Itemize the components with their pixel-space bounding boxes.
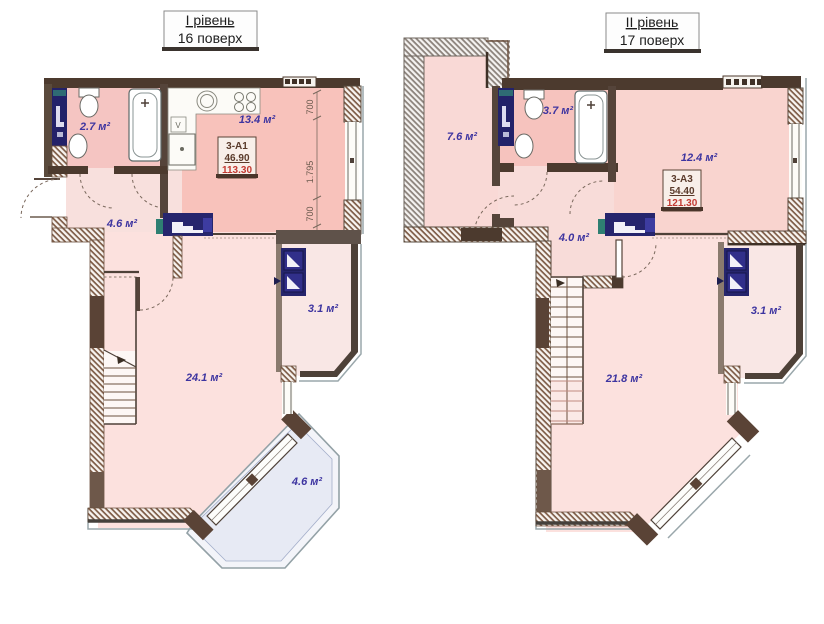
svg-text:4.6 м²: 4.6 м² [291, 476, 322, 488]
svg-text:46.90: 46.90 [224, 153, 249, 164]
svg-text:121.30: 121.30 [667, 198, 698, 209]
svg-text:54.40: 54.40 [669, 186, 694, 197]
svg-text:700: 700 [305, 99, 315, 114]
svg-text:V: V [175, 121, 181, 130]
svg-text:16 поверх: 16 поверх [178, 30, 243, 46]
svg-text:13.4 м²: 13.4 м² [239, 114, 276, 126]
svg-text:3.1 м²: 3.1 м² [308, 303, 338, 315]
svg-text:ІІ рівень: ІІ рівень [626, 14, 679, 30]
svg-text:24.1 м²: 24.1 м² [185, 372, 223, 384]
svg-text:4.6 м²: 4.6 м² [106, 218, 137, 230]
svg-text:17 поверх: 17 поверх [620, 32, 685, 48]
svg-text:7.6 м²: 7.6 м² [447, 131, 477, 143]
svg-text:4.0 м²: 4.0 м² [558, 232, 589, 244]
svg-text:2.7 м²: 2.7 м² [79, 121, 110, 133]
svg-text:21.8 м²: 21.8 м² [605, 373, 643, 385]
svg-text:1.795: 1.795 [305, 161, 315, 184]
svg-text:І рівень: І рівень [186, 12, 235, 28]
svg-text:3-А3: 3-А3 [671, 174, 693, 185]
svg-text:113.30: 113.30 [222, 165, 252, 176]
svg-text:3.7 м²: 3.7 м² [543, 105, 573, 117]
svg-text:12.4 м²: 12.4 м² [681, 152, 718, 164]
svg-text:3-А1: 3-А1 [226, 141, 248, 152]
svg-text:3.1 м²: 3.1 м² [751, 305, 781, 317]
svg-text:700: 700 [305, 206, 315, 221]
